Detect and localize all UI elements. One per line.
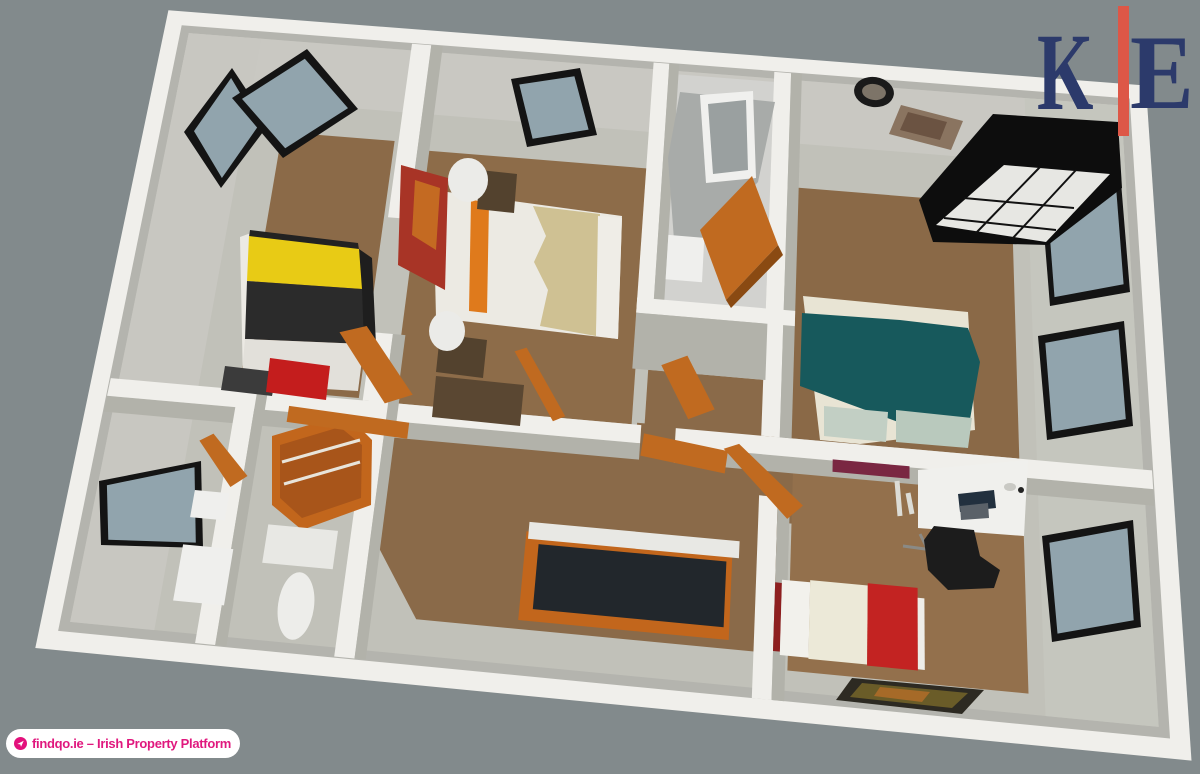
svg-text:E: E	[1130, 13, 1194, 131]
svg-text:K: K	[1037, 12, 1093, 134]
